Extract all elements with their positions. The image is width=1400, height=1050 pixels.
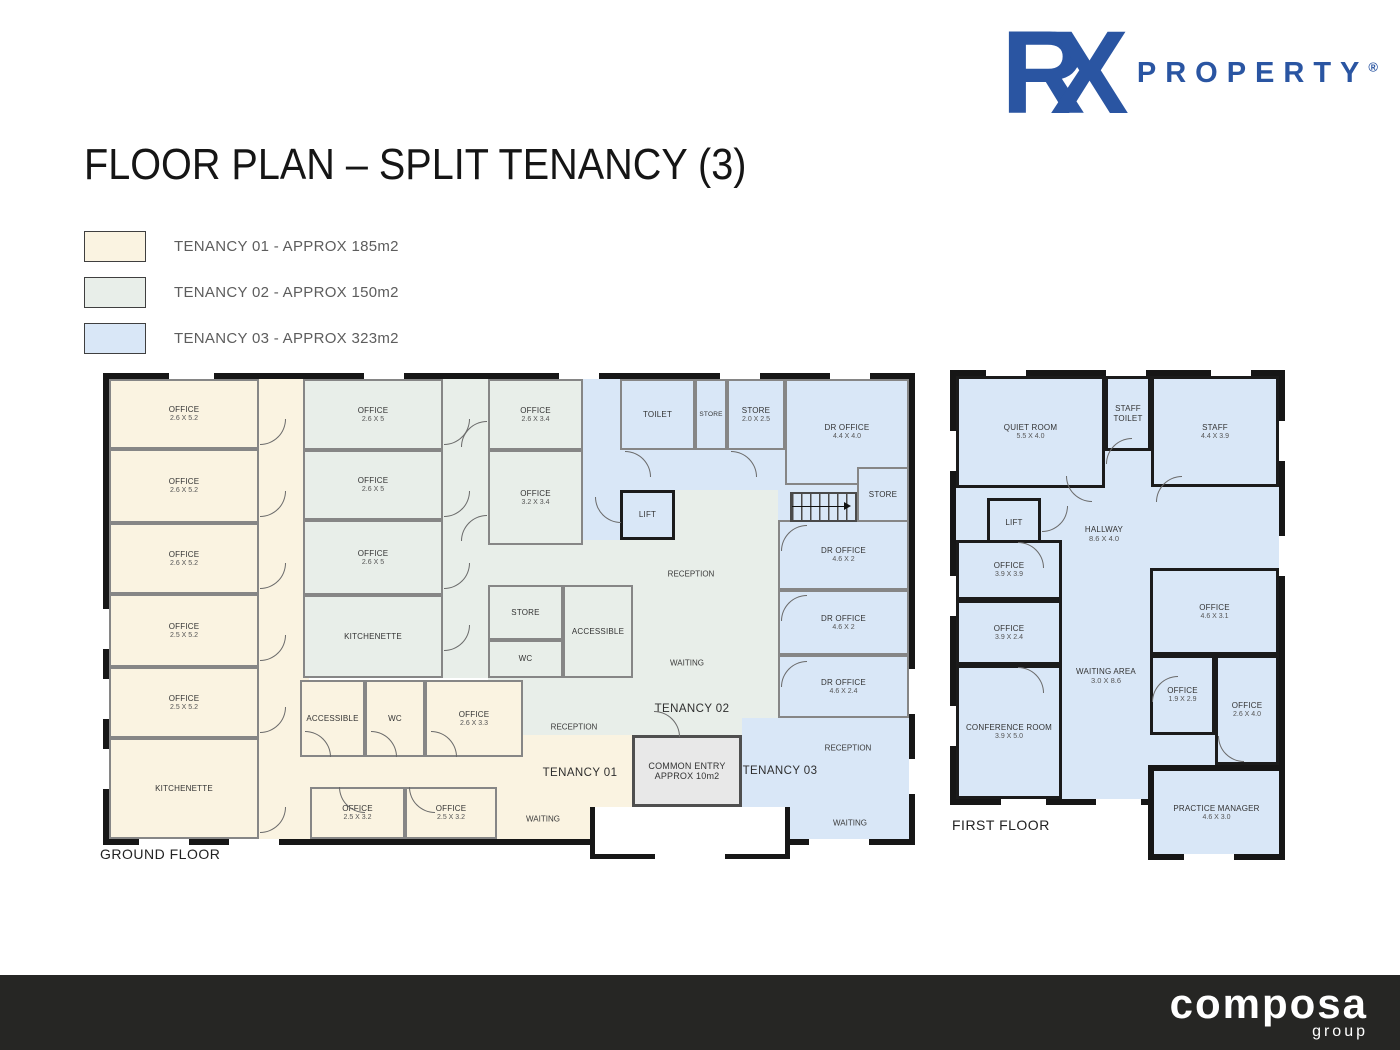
room-name: STAFF [1202, 423, 1228, 432]
room-kitchenette: KITCHENETTE [303, 595, 443, 678]
window-gap [1279, 421, 1285, 461]
room-name: WC [519, 654, 533, 663]
room-dims: 2.6 X 3.4 [521, 416, 549, 424]
composa-wordmark: composa [1170, 983, 1368, 1025]
room-kitchenette: KITCHENETTE [109, 738, 259, 839]
room-name: STORE [869, 490, 897, 499]
room-store: STORE2.0 X 2.5 [727, 379, 785, 450]
zone-label-t2-waiting: WAITING [670, 659, 704, 668]
room-store: STORE [695, 379, 727, 450]
window-gap [1211, 370, 1251, 376]
room-name: STORE [511, 608, 539, 617]
window-gap [364, 373, 404, 379]
room-name: OFFICE [436, 804, 467, 813]
room-name: OFFICE [1232, 701, 1263, 710]
room-dims: 3.9 X 2.4 [995, 634, 1023, 642]
room-office: OFFICE2.5 X 5.2 [109, 667, 259, 738]
room-name: TOILET [643, 410, 672, 419]
zone-dims: 3.0 X 8.6 [1091, 676, 1121, 685]
room-wc: WC [488, 640, 563, 678]
room-name: OFFICE [994, 624, 1025, 633]
room-name: DR OFFICE [821, 614, 866, 623]
window-gap [103, 749, 109, 789]
room-name: STORE [699, 411, 722, 418]
room-dims: 2.6 X 5 [362, 416, 384, 424]
zone-label-t3-waiting: WAITING [833, 819, 867, 828]
window-gap [559, 373, 599, 379]
stairs-direction-arrow [792, 506, 844, 507]
room-name: OFFICE [358, 549, 389, 558]
composa-group-logo: composa group [1170, 983, 1368, 1041]
legend-swatch-tenancy-02 [84, 277, 146, 308]
room-dims: 2.6 X 5.2 [170, 415, 198, 423]
room-conference: CONFERENCE ROOM3.9 X 5.0 [956, 665, 1062, 799]
legend-label-tenancy-01: TENANCY 01 - APPROX 185m2 [174, 238, 399, 255]
zone-label-t1-reception: RECEPTION [551, 723, 598, 732]
common-entry-line1: COMMON ENTRY [648, 761, 725, 771]
window-gap [909, 669, 915, 714]
room-store: STORE [488, 585, 563, 640]
room-dims: 3.2 X 3.4 [521, 499, 549, 507]
room-office: OFFICE2.5 X 5.2 [109, 594, 259, 667]
window-gap [169, 373, 214, 379]
rx-monogram-icon: RX [1001, 14, 1123, 132]
room-dims: 3.9 X 5.0 [995, 733, 1023, 741]
window-gap [950, 431, 956, 471]
room-dims: 2.6 X 4.0 [1233, 711, 1261, 719]
legend-swatch-tenancy-03 [84, 323, 146, 354]
room-office: OFFICE2.6 X 5.2 [109, 379, 259, 449]
brand-name: PROPERTY [1137, 57, 1369, 89]
window-gap [1279, 536, 1285, 576]
room-dims: 4.4 X 3.9 [1201, 433, 1229, 441]
zone-name: HALLWAY [1085, 525, 1123, 534]
first-floor-plan: QUIET ROOM5.5 X 4.0 STAFF TOILET STAFF4.… [950, 370, 1285, 805]
room-name: OFFICE [169, 477, 200, 486]
room-accessible: ACCESSIBLE [563, 585, 633, 678]
room-office: OFFICE2.6 X 3.4 [488, 379, 583, 450]
window-gap [1001, 799, 1046, 805]
slide: RX PROPERTY® FLOOR PLAN – SPLIT TENANCY … [0, 0, 1400, 1050]
window-gap [139, 839, 189, 845]
room-dims: 2.5 X 5.2 [170, 704, 198, 712]
room-office: OFFICE2.6 X 5 [303, 450, 443, 520]
room-name: LIFT [639, 510, 656, 519]
rx-property-logo: RX PROPERTY® [1001, 14, 1378, 132]
room-name: KITCHENETTE [344, 632, 402, 641]
ground-floor-label: GROUND FLOOR [100, 846, 220, 862]
window-gap [1184, 854, 1234, 860]
room-name: DR OFFICE [821, 678, 866, 687]
window-gap [986, 370, 1026, 376]
room-name: OFFICE [520, 406, 551, 415]
room-office: OFFICE3.2 X 3.4 [488, 450, 583, 545]
brand-wordmark: PROPERTY® [1137, 57, 1378, 90]
room-name: OFFICE [169, 622, 200, 631]
room-dims: 2.6 X 5 [362, 559, 384, 567]
room-office: OFFICE3.9 X 2.4 [956, 600, 1062, 665]
room-name: PRACTICE MANAGER [1173, 804, 1259, 813]
room-dims: 2.6 X 5.2 [170, 487, 198, 495]
window-gap [809, 839, 869, 845]
logo-letter-x: X [1050, 7, 1123, 139]
room-office: OFFICE2.6 X 5.2 [109, 449, 259, 523]
room-dims: 4.6 X 3.1 [1200, 613, 1228, 621]
room-dims: 2.5 X 3.2 [437, 814, 465, 822]
room-dims: 4.4 X 4.0 [833, 433, 861, 441]
practice-manager-wing: PRACTICE MANAGER 4.6 X 3.0 [1148, 765, 1285, 860]
room-staff: STAFF4.4 X 3.9 [1151, 376, 1279, 487]
room-dims: 4.6 X 3.0 [1202, 814, 1230, 822]
room-dims: 2.6 X 5.2 [170, 560, 198, 568]
room-name: OFFICE [169, 550, 200, 559]
room-name: OFFICE [169, 694, 200, 703]
page-title: FLOOR PLAN – SPLIT TENANCY (3) [84, 140, 746, 190]
room-quiet-room: QUIET ROOM5.5 X 4.0 [956, 376, 1105, 488]
window-gap [103, 609, 109, 649]
window-gap [909, 759, 915, 794]
room-store: STORE [857, 467, 909, 522]
room-name: OFFICE [1199, 603, 1230, 612]
legend-label-tenancy-02: TENANCY 02 - APPROX 150m2 [174, 284, 399, 301]
zone-label-tenancy-01: TENANCY 01 [543, 767, 618, 779]
zone-label-t3-reception: RECEPTION [825, 744, 872, 753]
zone-label-hallway: HALLWAY8.6 X 4.0 [1085, 525, 1123, 543]
room-dims: 4.6 X 2 [832, 556, 854, 564]
room-name: DR OFFICE [825, 423, 870, 432]
room-common-entry: COMMON ENTRY APPROX 10m2 [632, 735, 742, 807]
room-name: OFFICE [459, 710, 490, 719]
room-dims: 2.6 X 5 [362, 486, 384, 494]
room-name: OFFICE [169, 405, 200, 414]
zone-name: WAITING AREA [1076, 667, 1136, 676]
zone-dims: 8.6 X 4.0 [1089, 534, 1119, 543]
room-office: OFFICE2.6 X 5 [303, 520, 443, 595]
room-name: ACCESSIBLE [572, 627, 624, 636]
room-dims: 2.6 X 3.3 [460, 720, 488, 728]
room-dims: 2.5 X 5.2 [170, 632, 198, 640]
room-lift: LIFT [620, 490, 675, 540]
window-gap [830, 373, 870, 379]
room-name: DR OFFICE [821, 546, 866, 555]
zone-label-t2-reception: RECEPTION [668, 570, 715, 579]
window-gap [229, 839, 279, 845]
window-gap [1096, 799, 1141, 805]
legend-item-tenancy-03: TENANCY 03 - APPROX 323m2 [84, 322, 399, 354]
legend-label-tenancy-03: TENANCY 03 - APPROX 323m2 [174, 330, 399, 347]
window-gap [103, 679, 109, 719]
room-dims: 4.6 X 2.4 [829, 688, 857, 696]
footer-bar: composa group [0, 975, 1400, 1050]
room-name: STAFF TOILET [1109, 404, 1147, 422]
room-name: STORE [742, 406, 770, 415]
legend-item-tenancy-01: TENANCY 01 - APPROX 185m2 [84, 230, 399, 262]
room-dims: 5.5 X 4.0 [1016, 433, 1044, 441]
zone-label-t1-waiting: WAITING [526, 815, 560, 824]
room-name: WC [388, 714, 402, 723]
room-name: KITCHENETTE [155, 784, 213, 793]
room-name: OFFICE [358, 476, 389, 485]
room-dims: 3.9 X 3.9 [995, 571, 1023, 579]
zone-label-waiting-area: WAITING AREA3.0 X 8.6 [1076, 667, 1136, 685]
room-name: OFFICE [520, 489, 551, 498]
window-gap [720, 373, 760, 379]
common-entry-line2: APPROX 10m2 [655, 771, 720, 781]
first-floor-label: FIRST FLOOR [952, 817, 1050, 833]
room-office: OFFICE3.9 X 3.9 [956, 540, 1062, 600]
window-gap [1106, 370, 1146, 376]
ground-floor-plan: OFFICE2.6 X 5.2 OFFICE2.6 X 5.2 OFFICE2.… [103, 373, 915, 845]
window-gap [655, 854, 725, 859]
entry-porch [590, 807, 790, 859]
room-office: OFFICE2.6 X 5.2 [109, 523, 259, 594]
window-gap [950, 576, 956, 616]
room-name: OFFICE [358, 406, 389, 415]
room-toilet: TOILET [620, 379, 695, 450]
zone-label-tenancy-03: TENANCY 03 [743, 765, 818, 777]
room-name: ACCESSIBLE [306, 714, 358, 723]
legend-item-tenancy-02: TENANCY 02 - APPROX 150m2 [84, 276, 399, 308]
room-office: OFFICE2.6 X 5 [303, 379, 443, 450]
window-gap [950, 706, 956, 746]
registered-mark: ® [1368, 59, 1378, 74]
room-dims: 2.0 X 2.5 [742, 416, 770, 424]
room-name: QUIET ROOM [1004, 423, 1057, 432]
room-office: OFFICE4.6 X 3.1 [1150, 568, 1279, 655]
room-name: LIFT [1005, 518, 1022, 527]
legend-swatch-tenancy-01 [84, 231, 146, 262]
room-dims: 4.6 X 2 [832, 624, 854, 632]
room-dims: 2.5 X 3.2 [343, 814, 371, 822]
room-name: CONFERENCE ROOM [966, 723, 1052, 732]
